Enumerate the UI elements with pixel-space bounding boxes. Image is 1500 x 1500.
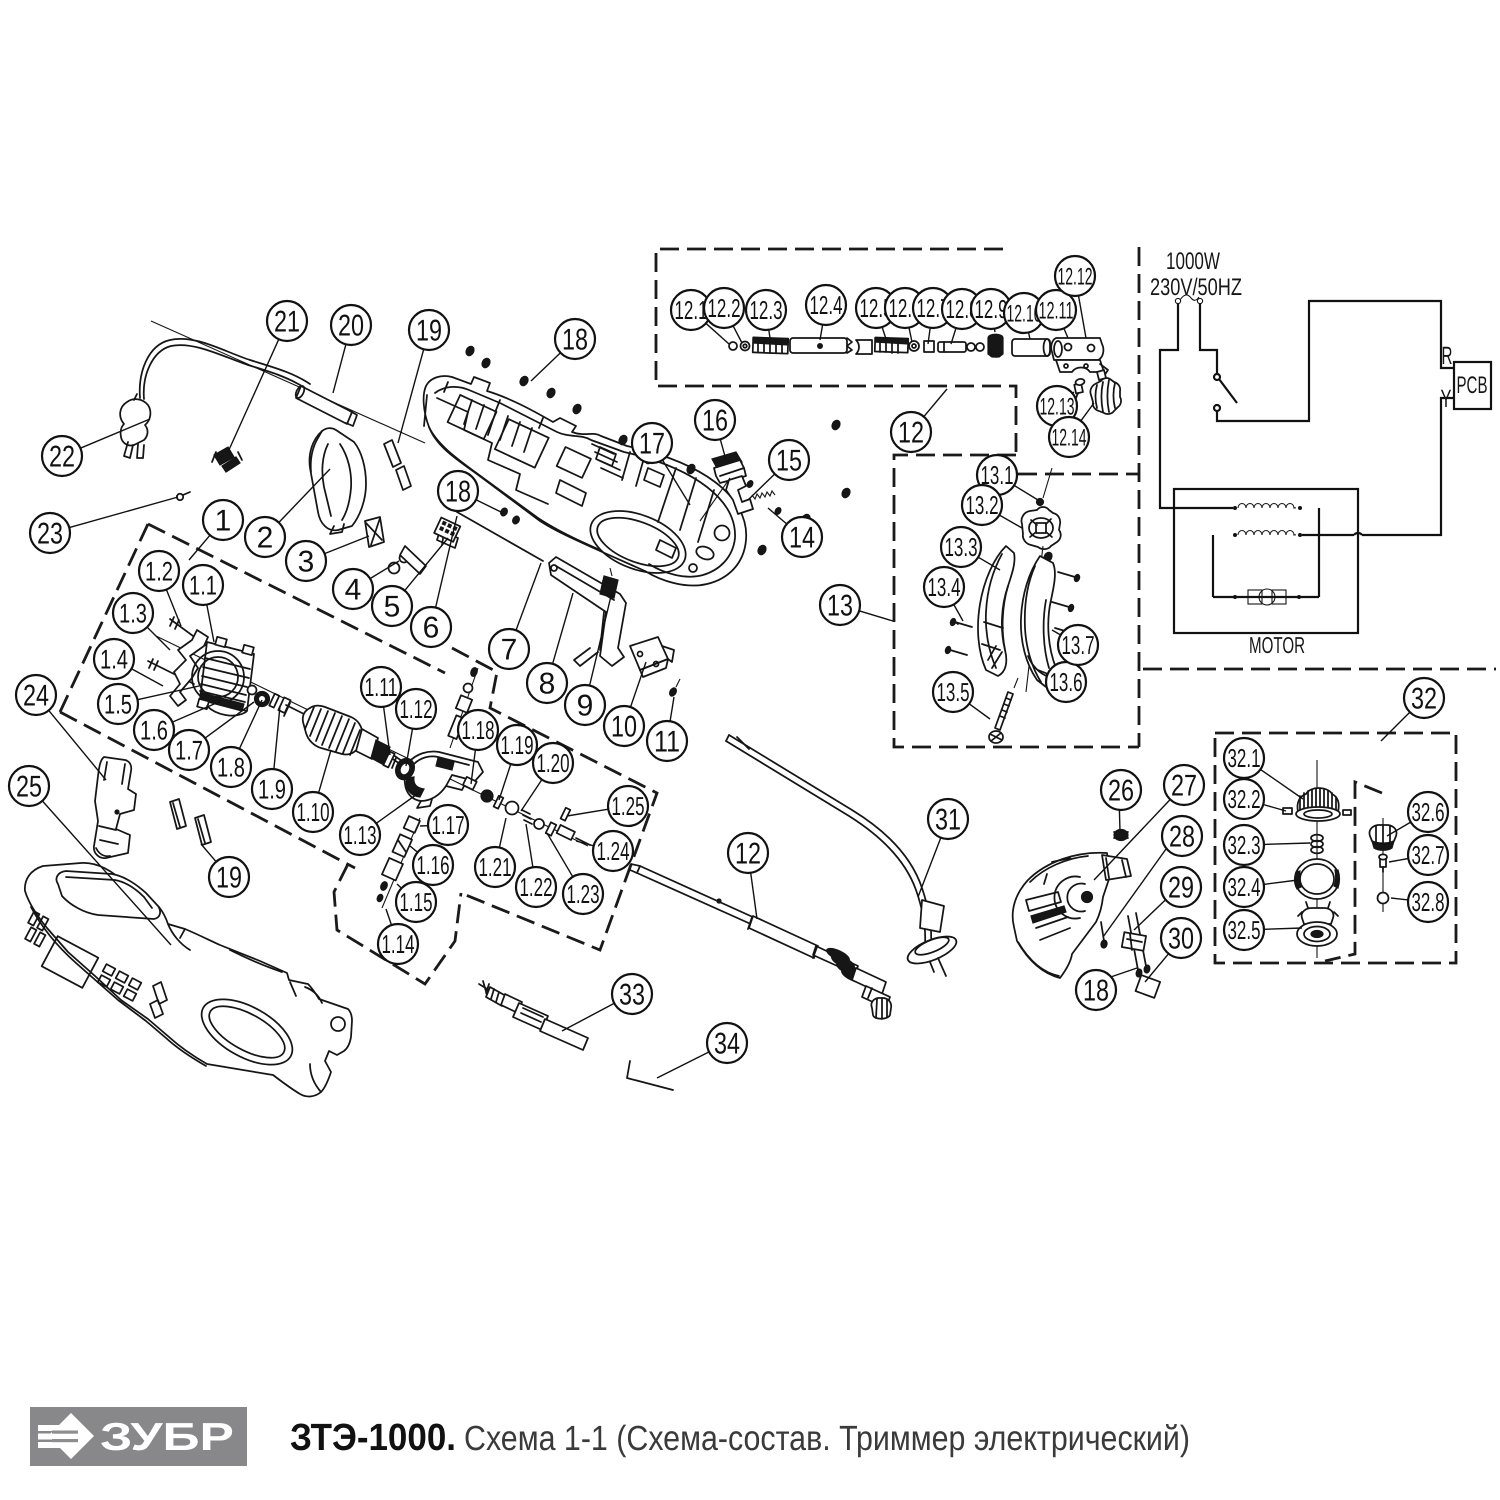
- svg-text:24: 24: [23, 680, 49, 713]
- svg-text:25: 25: [16, 771, 42, 804]
- svg-text:5: 5: [384, 591, 401, 624]
- svg-text:13.3: 13.3: [945, 532, 978, 562]
- svg-text:12.1: 12.1: [675, 295, 708, 325]
- svg-text:13.4: 13.4: [928, 572, 961, 602]
- svg-text:13.7: 13.7: [1062, 630, 1095, 660]
- svg-text:12.12: 12.12: [1058, 264, 1093, 291]
- svg-text:1000W: 1000W: [1166, 248, 1220, 275]
- svg-text:PCB: PCB: [1457, 372, 1488, 399]
- svg-text:8: 8: [539, 668, 556, 701]
- svg-text:3: 3: [298, 546, 315, 579]
- svg-text:1.2: 1.2: [145, 557, 173, 587]
- svg-text:1.25: 1.25: [612, 791, 645, 821]
- svg-text:1.15: 1.15: [400, 887, 433, 917]
- svg-text:ЗТЭ-1000.: ЗТЭ-1000.: [290, 1417, 456, 1459]
- svg-text:13.2: 13.2: [966, 490, 999, 520]
- svg-text:12.11: 12.11: [1039, 298, 1074, 325]
- svg-text:1.17: 1.17: [432, 810, 465, 840]
- svg-text:13.5: 13.5: [937, 677, 970, 707]
- svg-text:19: 19: [416, 315, 442, 348]
- svg-text:1.23: 1.23: [567, 879, 600, 909]
- svg-text:1.21: 1.21: [479, 852, 512, 882]
- svg-text:32.2: 32.2: [1228, 784, 1261, 814]
- svg-text:1.13: 1.13: [344, 820, 377, 850]
- svg-text:13: 13: [827, 590, 853, 623]
- svg-text:12: 12: [735, 838, 761, 871]
- svg-text:34: 34: [714, 1028, 740, 1061]
- svg-text:26: 26: [1108, 775, 1134, 808]
- svg-text:28: 28: [1169, 821, 1195, 854]
- svg-text:15: 15: [776, 445, 802, 478]
- svg-text:R: R: [1442, 342, 1453, 370]
- svg-text:14: 14: [789, 522, 815, 555]
- svg-text:1.12: 1.12: [400, 694, 433, 724]
- svg-text:29: 29: [1168, 872, 1194, 905]
- svg-text:31: 31: [935, 804, 961, 837]
- svg-text:32.3: 32.3: [1228, 830, 1261, 860]
- svg-text:1.24: 1.24: [597, 836, 630, 866]
- svg-text:12.14: 12.14: [1052, 425, 1087, 452]
- svg-text:1.1: 1.1: [189, 571, 217, 601]
- svg-text:MOTOR: MOTOR: [1249, 632, 1305, 658]
- svg-text:1.18: 1.18: [462, 715, 495, 745]
- svg-text:32.7: 32.7: [1412, 840, 1445, 870]
- svg-text:20: 20: [338, 310, 364, 343]
- svg-text:230V/50HZ: 230V/50HZ: [1150, 274, 1242, 301]
- svg-text:11: 11: [654, 726, 680, 759]
- svg-text:17: 17: [639, 428, 665, 461]
- svg-text:12.4: 12.4: [810, 290, 843, 320]
- svg-text:18: 18: [1083, 975, 1109, 1008]
- svg-text:Y: Y: [1441, 385, 1452, 413]
- svg-text:33: 33: [619, 979, 645, 1012]
- svg-text:12.2: 12.2: [708, 293, 741, 323]
- svg-text:12.3: 12.3: [750, 295, 783, 325]
- svg-text:9: 9: [577, 690, 594, 723]
- svg-text:1.16: 1.16: [417, 850, 450, 880]
- svg-text:1.5: 1.5: [104, 690, 132, 720]
- svg-text:1.9: 1.9: [258, 775, 286, 805]
- svg-text:32: 32: [1411, 683, 1437, 716]
- svg-text:32.5: 32.5: [1228, 915, 1261, 945]
- svg-text:7: 7: [501, 634, 518, 667]
- svg-text:32.8: 32.8: [1412, 887, 1445, 917]
- svg-text:22: 22: [49, 441, 75, 474]
- svg-text:1.10: 1.10: [297, 797, 330, 827]
- svg-text:23: 23: [37, 518, 63, 551]
- svg-text:32.1: 32.1: [1228, 743, 1261, 773]
- svg-text:21: 21: [274, 306, 300, 339]
- svg-text:32.4: 32.4: [1228, 872, 1261, 902]
- svg-text:16: 16: [702, 405, 728, 438]
- svg-text:13.6: 13.6: [1050, 667, 1083, 697]
- svg-text:1.3: 1.3: [119, 599, 147, 629]
- svg-text:12.9: 12.9: [975, 294, 1008, 324]
- svg-text:1.22: 1.22: [520, 872, 553, 902]
- svg-text:1.4: 1.4: [100, 645, 128, 675]
- svg-text:4: 4: [345, 574, 362, 607]
- svg-text:1.6: 1.6: [140, 716, 168, 746]
- svg-text:Схема 1-1 (Схема-состав. Тримм: Схема 1-1 (Схема-состав. Триммер электри…: [464, 1419, 1190, 1458]
- svg-text:1.14: 1.14: [382, 929, 415, 959]
- svg-text:6: 6: [423, 612, 440, 645]
- svg-text:ЗУБР: ЗУБР: [100, 1416, 234, 1459]
- svg-text:12: 12: [898, 417, 924, 450]
- svg-text:30: 30: [1168, 923, 1194, 956]
- svg-text:1: 1: [215, 505, 232, 538]
- svg-text:1.11: 1.11: [365, 672, 398, 702]
- svg-text:18: 18: [445, 476, 471, 509]
- svg-text:18: 18: [562, 324, 588, 357]
- svg-text:10: 10: [611, 711, 637, 744]
- svg-text:1.7: 1.7: [175, 736, 203, 766]
- svg-text:2: 2: [257, 522, 274, 555]
- svg-text:19: 19: [216, 862, 242, 895]
- svg-text:1.19: 1.19: [501, 730, 534, 760]
- svg-text:1.20: 1.20: [537, 748, 570, 778]
- svg-text:32.6: 32.6: [1412, 797, 1445, 827]
- svg-text:27: 27: [1171, 770, 1197, 803]
- svg-text:1.8: 1.8: [217, 753, 245, 783]
